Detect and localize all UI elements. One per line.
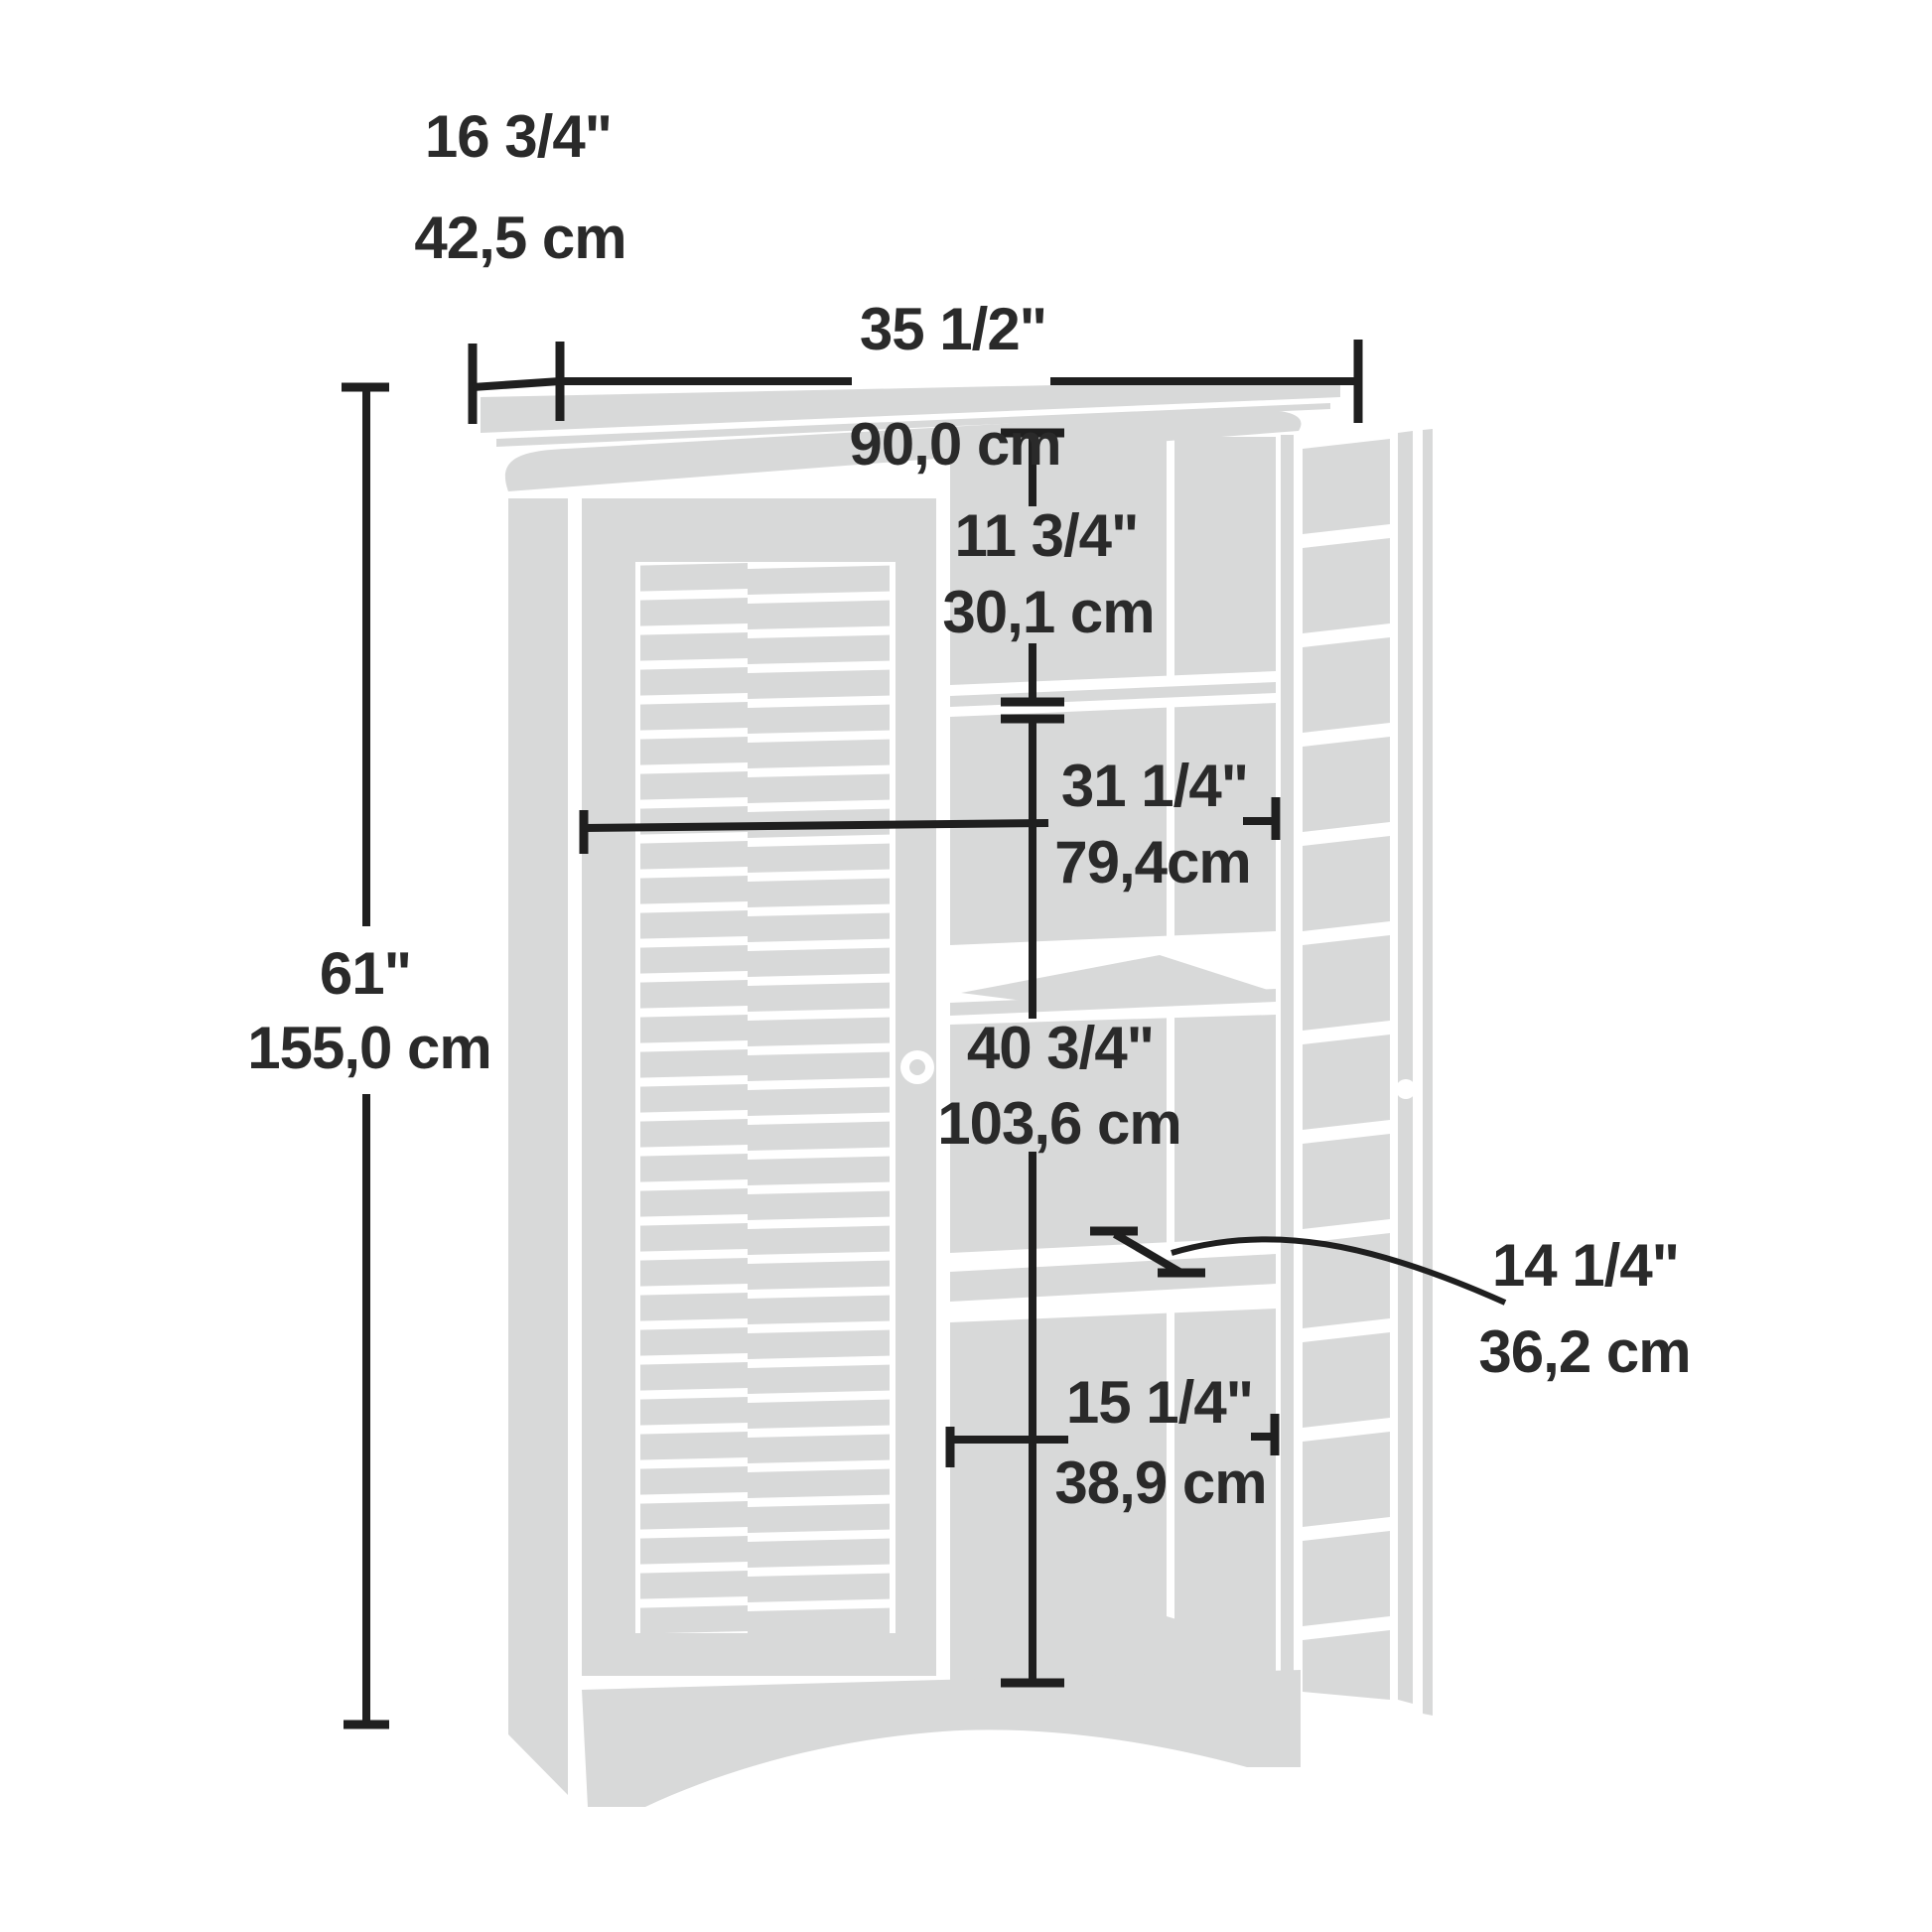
left-door [582,498,936,1676]
dim-interior-width-inches: 31 1/4" [1061,757,1248,816]
dim-overall-width-inches: 35 1/2" [860,300,1046,359]
left-door-top-rail [582,498,936,562]
dim-overall-width-cm: 90,0 cm [849,415,1060,475]
right-side-stile [1281,435,1294,1674]
left-door-left-stile [582,498,635,1676]
dim-lower-opening-inches: 15 1/4" [1066,1373,1253,1433]
dim-lower-interior-inches: 40 3/4" [967,1019,1154,1078]
right-door-knob [1396,1079,1416,1099]
dim-shelf-depth-inches: 14 1/4" [1492,1236,1679,1296]
dim-top-compartment-cm: 30,1 cm [942,583,1154,642]
dim-lower-opening-cm: 38,9 cm [1054,1453,1266,1513]
right-door-edge [1423,429,1433,1716]
right-door-stile [1398,431,1413,1704]
left-door-bottom-rail [582,1633,936,1676]
dim-interior-width-cm: 79,4cm [1054,833,1251,893]
dim-lower-interior-cm: 103,6 cm [937,1094,1181,1154]
dim-overall-height-cm: 155,0 cm [247,1019,491,1078]
left-door-knob-center [909,1059,925,1075]
cabinet-line-art [0,0,1932,1932]
dimension-diagram: 16 3/4" 42,5 cm 35 1/2" 90,0 cm 11 3/4" … [0,0,1932,1932]
right-door-panels [1303,437,1390,1688]
dim-top-depth-inches: 16 3/4" [425,107,612,167]
left-door-louvers [640,562,890,1633]
base-apron [582,1670,1301,1807]
dim-top-compartment-inches: 11 3/4" [955,506,1139,566]
dim-top-depth-cm: 42,5 cm [414,208,625,268]
left-door-right-stile [896,498,936,1676]
dim-overall-height-inches: 61" [320,944,411,1004]
left-side-panel [508,498,568,1795]
dim-shelf-depth-cm: 36,2 cm [1478,1322,1690,1382]
right-door [1303,429,1433,1716]
